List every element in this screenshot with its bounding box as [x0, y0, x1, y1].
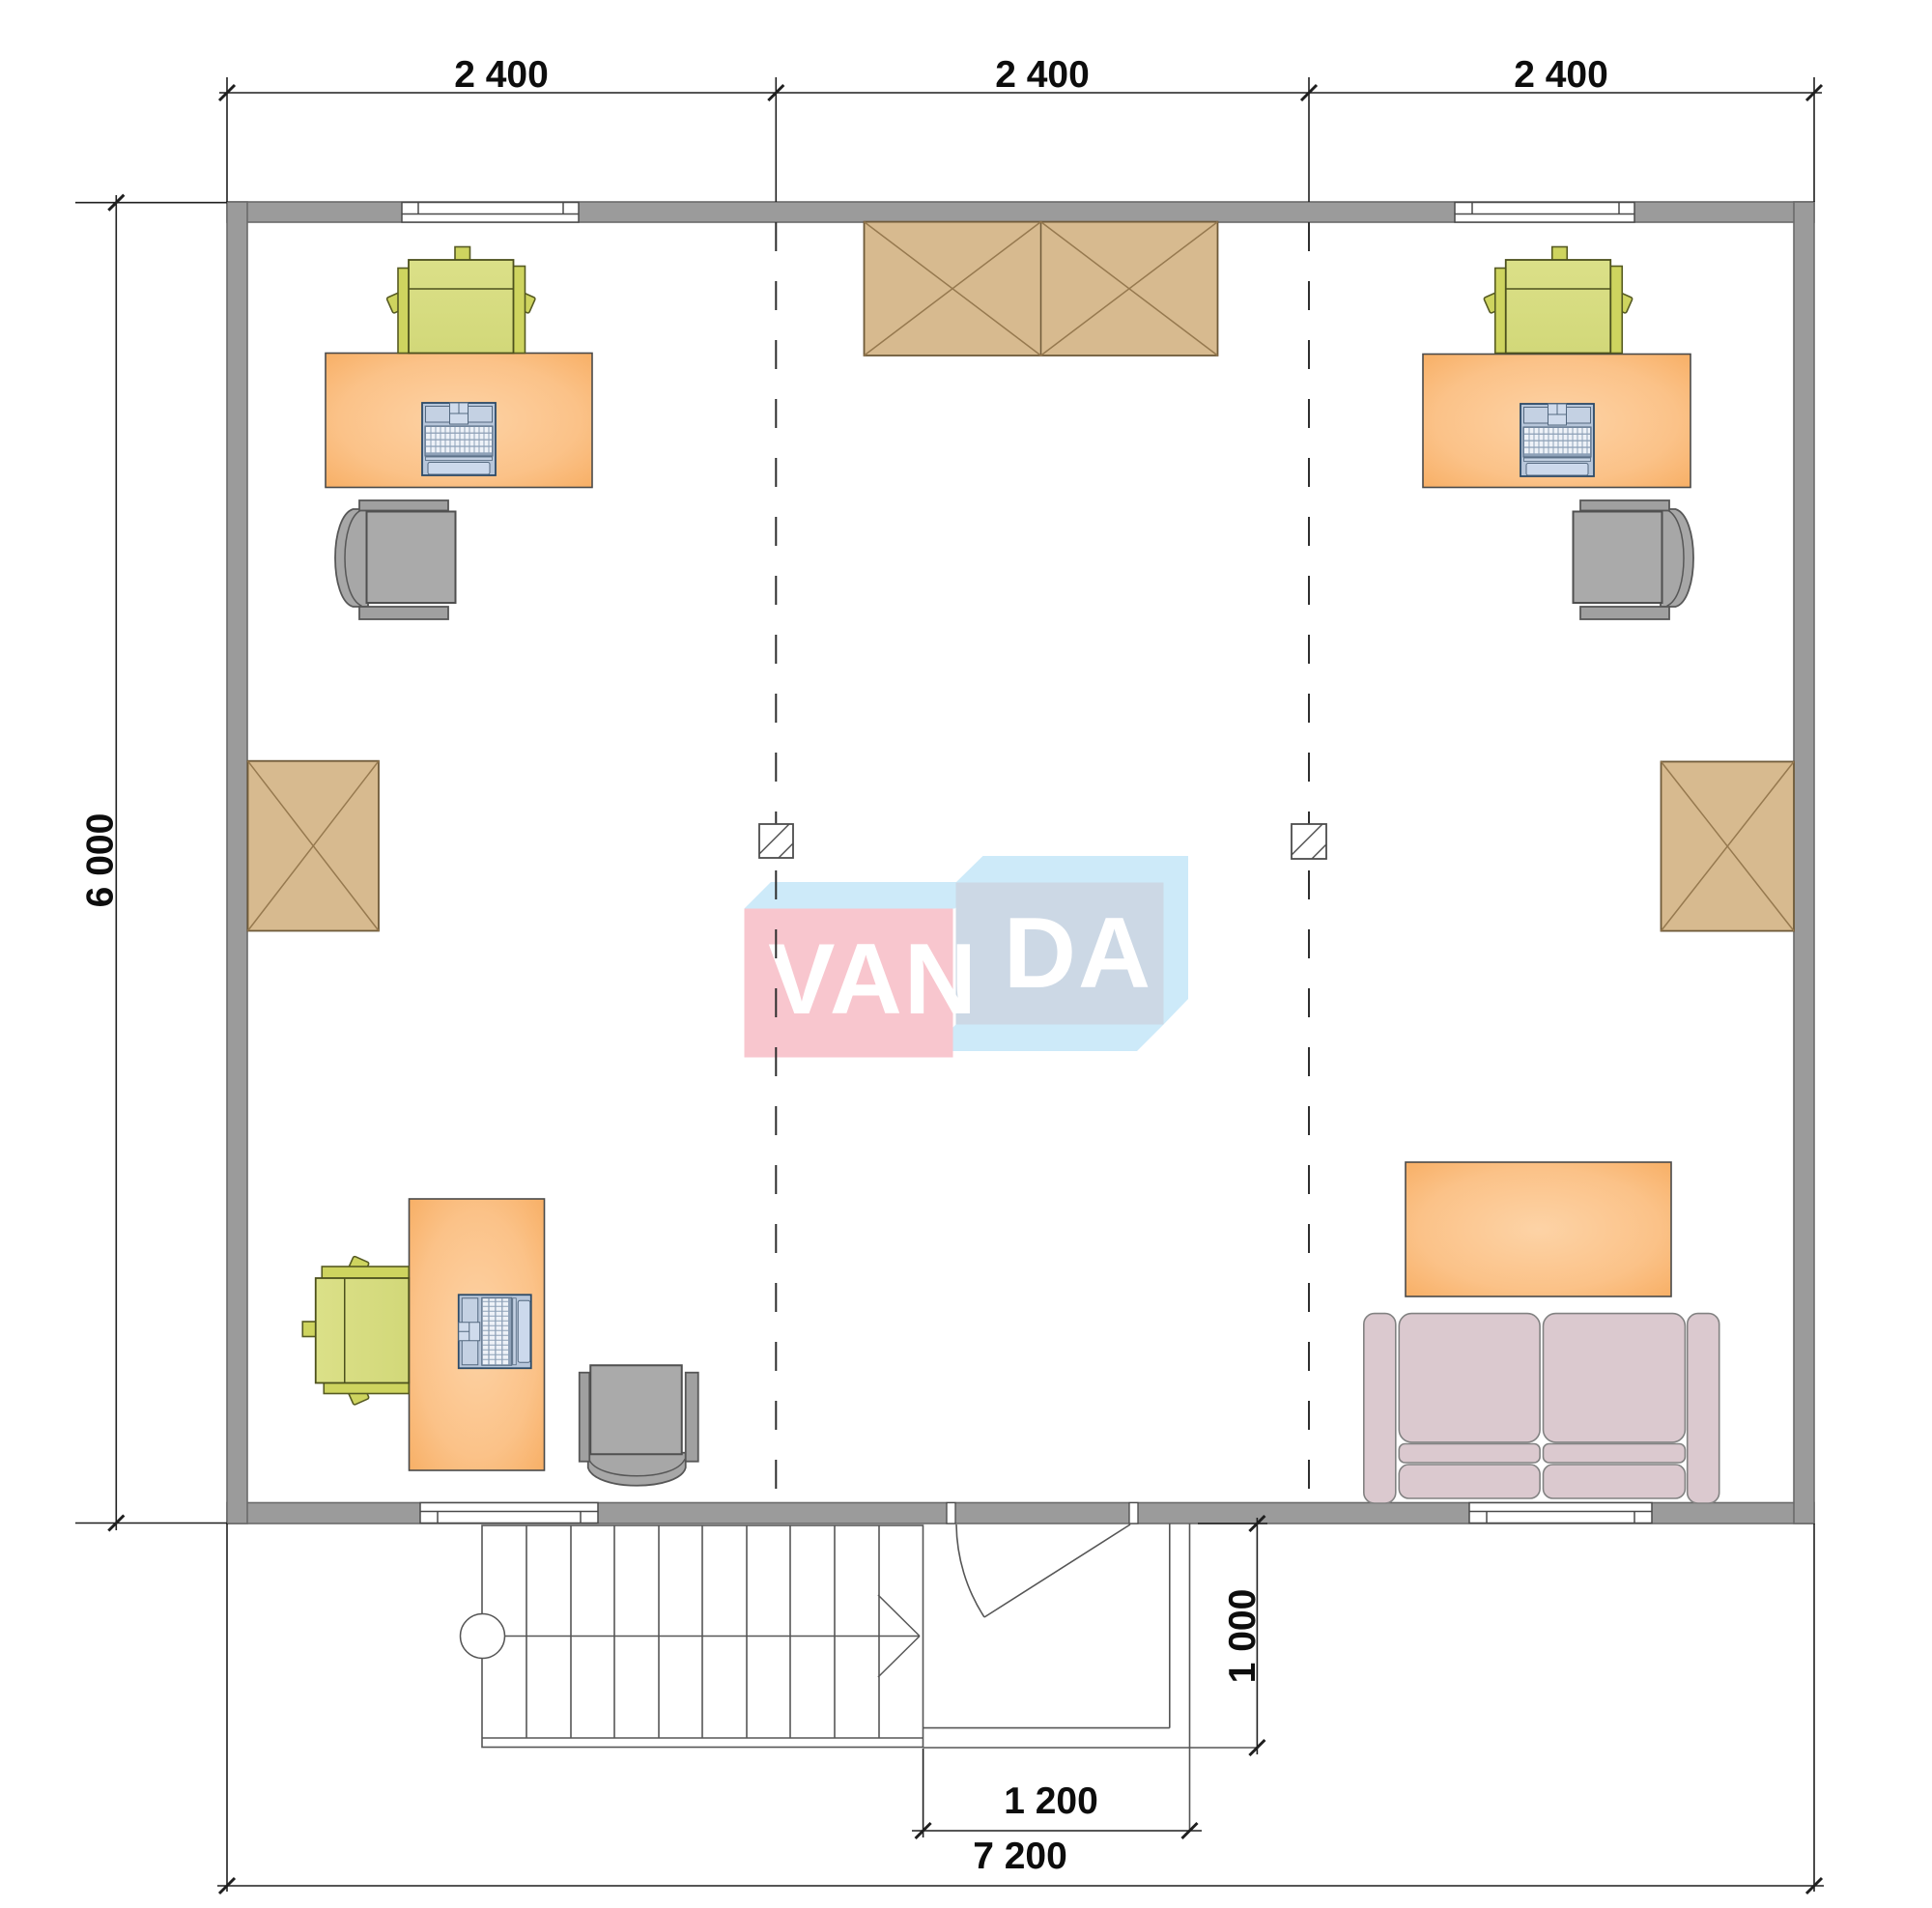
svg-text:1 000: 1 000: [1222, 1589, 1264, 1684]
svg-text:2 400: 2 400: [1514, 54, 1608, 96]
svg-text:6 000: 6 000: [80, 813, 122, 908]
svg-text:2 400: 2 400: [454, 54, 549, 96]
svg-text:DA: DA: [1004, 897, 1152, 1010]
svg-text:VAN: VAN: [768, 924, 979, 1036]
svg-text:2 400: 2 400: [995, 54, 1090, 96]
svg-text:1 200: 1 200: [1004, 1780, 1098, 1822]
svg-text:7 200: 7 200: [973, 1836, 1067, 1877]
